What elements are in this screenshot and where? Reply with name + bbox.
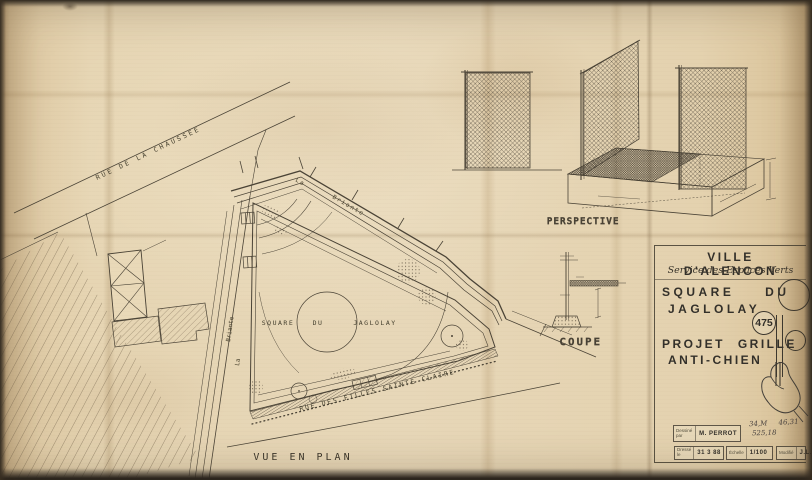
caption-coupe: COUPE: [560, 337, 603, 348]
label-la-left: La: [234, 358, 242, 367]
title-block-service: Service des Espaces Verts: [655, 265, 806, 276]
revision-box: Modifié J.L.J: [776, 446, 806, 460]
embankment-hatch: [0, 232, 200, 480]
sketch-circle-large: [778, 279, 810, 311]
project-subtitle-line2: ANTI-CHIEN: [668, 353, 762, 367]
plan-number-badge: 475: [752, 311, 776, 335]
project-title-line2: JAGLOLAY: [668, 302, 760, 316]
south-wall: [227, 349, 560, 447]
drawn-by-value: M. PERROT: [696, 426, 740, 441]
handwritten-note-1: 34,M 46,31: [749, 418, 799, 429]
label-du: DU: [313, 319, 324, 327]
label-jaglolay: JAGLOLAY: [353, 319, 396, 327]
date-box: Dressé le 31 3 88: [674, 446, 724, 460]
label-la: La: [294, 177, 306, 188]
scanned-plan-sheet: RUE DE LA CHAUSSÉE La Briante Briante La…: [0, 0, 812, 480]
project-title-line1: SQUARE DU: [662, 285, 790, 299]
drawn-by-box: Dessiné par M. PERROT: [673, 425, 741, 442]
road-chaussee: [0, 82, 295, 260]
title-block: VILLE D'ALENCON Service des Espaces Vert…: [654, 245, 806, 463]
date-value: 31 3 88: [694, 447, 724, 459]
revision-label: Modifié: [777, 447, 797, 459]
central-circle: [297, 292, 357, 352]
hand-sketch: [755, 362, 811, 426]
scale-box: Échelle 1/100: [726, 446, 773, 460]
section-view: COUPE: [543, 252, 626, 348]
fence-panel-right: [675, 65, 748, 190]
scale-value: 1/100: [747, 447, 771, 459]
revision-value: J.L.J: [797, 447, 812, 459]
title-block-divider: [655, 279, 806, 280]
label-briante-left: Briante: [225, 316, 236, 342]
scale-label: Échelle: [727, 447, 747, 459]
handwritten-note-2: 525,18: [752, 429, 777, 438]
caption-perspective: PERSPECTIVE: [547, 217, 620, 227]
label-rue-de-la-chaussee: RUE DE LA CHAUSSÉE: [94, 124, 202, 182]
fence-panel-left: [461, 70, 533, 170]
label-rue-filles-sainte-claire: RUE DES FILLES SAINTE CLAIRE: [299, 368, 456, 413]
label-briante: Briante: [331, 194, 366, 218]
date-label: Dressé le: [675, 447, 694, 459]
river-left-branch: [189, 196, 250, 479]
drawn-by-label: Dessiné par: [674, 426, 696, 441]
project-subtitle-line1: PROJET GRILLE: [662, 337, 797, 351]
label-square: SQUARE: [262, 319, 294, 327]
caption-vue-en-plan: VUE EN PLAN: [253, 452, 352, 463]
perspective-view: PERSPECTIVE: [452, 40, 776, 227]
